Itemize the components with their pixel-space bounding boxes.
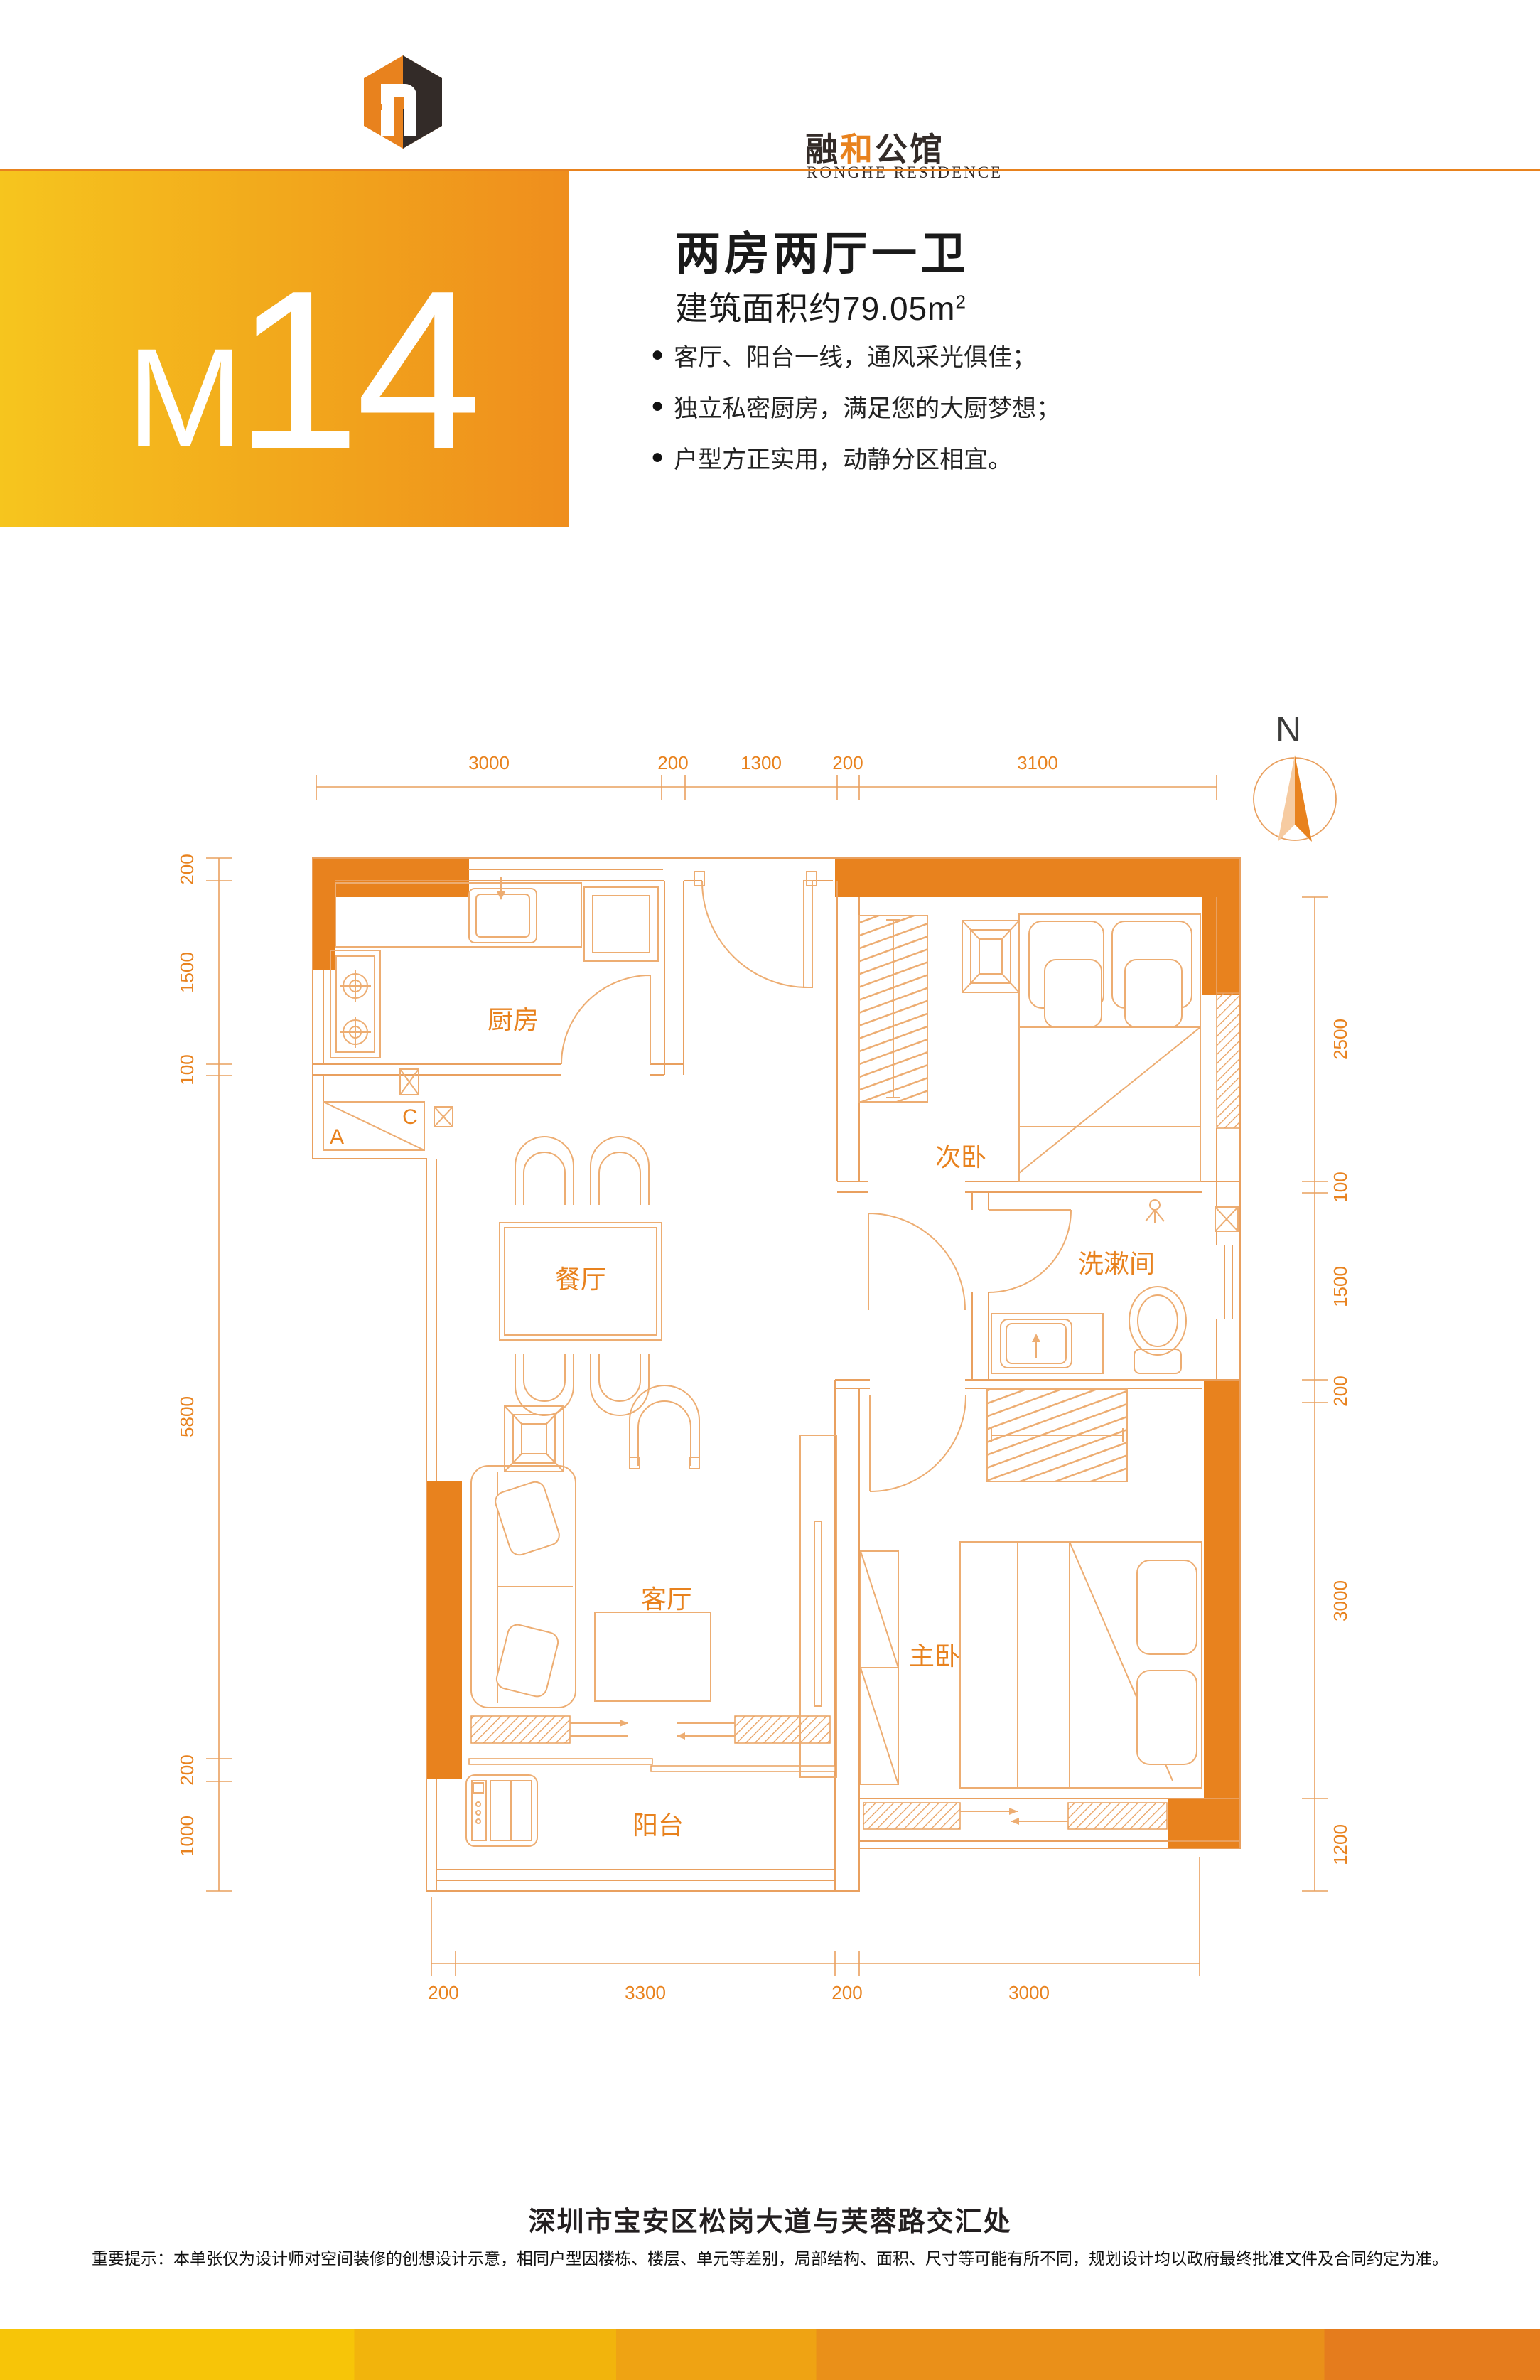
entry-door-arc <box>702 881 808 987</box>
dim-right-3: 200 <box>1330 1376 1351 1406</box>
sliding-panel-left <box>471 1716 570 1743</box>
faucet-icon <box>497 891 505 900</box>
dim-bottom-0: 200 <box>428 1982 458 2003</box>
unit-type-title: 两房两厅一卫 <box>675 218 969 283</box>
armchair <box>630 1385 699 1466</box>
dim-bottom-1: 3300 <box>625 1982 666 2003</box>
logo-name-part1: 融 <box>805 131 840 168</box>
label-living: 客厅 <box>641 1585 692 1614</box>
second-bedroom-furniture <box>859 914 1200 1181</box>
balcony-furniture <box>466 1775 537 1846</box>
master-furniture <box>861 1389 1202 1788</box>
dim-right-5: 1200 <box>1330 1824 1351 1865</box>
feature-text: 独立私密厨房，满足您的大厨梦想； <box>674 395 1060 422</box>
window-second-bedroom <box>1217 993 1240 1128</box>
washroom-door <box>989 1210 1071 1292</box>
entry-door-leaf <box>804 881 812 987</box>
sofa-pillow <box>493 1479 562 1558</box>
unit-area-text: 建筑面积约79.05m <box>675 290 955 327</box>
sliding-arrows <box>570 1720 735 1740</box>
window-master-right <box>1068 1803 1167 1829</box>
coffee-table <box>595 1612 711 1701</box>
dim-left-3: 5800 <box>176 1396 198 1437</box>
feature-item: ●独立私密厨房，满足您的大厨梦想； <box>651 384 1291 435</box>
label-cabinet-c: C <box>402 1105 418 1129</box>
north-label: N <box>1276 709 1301 749</box>
unit-code-banner: M 14 <box>0 171 569 527</box>
north-arrow-icon: N <box>1254 709 1336 842</box>
tv <box>814 1521 822 1706</box>
washroom-furniture <box>991 1200 1186 1373</box>
dim-right-0: 2500 <box>1330 1019 1351 1060</box>
logo-name-part2: 和 <box>840 131 875 168</box>
unit-letter: M <box>126 343 244 453</box>
dim-right-2: 1500 <box>1330 1266 1351 1307</box>
dim-left-5: 1000 <box>176 1816 198 1857</box>
logo-hexagon-icon <box>359 50 451 156</box>
dim-top-2: 1300 <box>741 752 782 773</box>
fridge <box>584 887 658 961</box>
dim-bottom-3: 3000 <box>1008 1982 1050 2003</box>
floor-plan: N 3000 200 1300 200 3100 200 3300 200 30… <box>0 682 1540 2047</box>
kitchen-door <box>561 975 650 1064</box>
second-bedroom-door <box>868 1213 965 1310</box>
unit-area: 建筑面积约79.05m2 <box>675 283 966 330</box>
feature-list: ●客厅、阳台一线，通风采光俱佳； ●独立私密厨房，满足您的大厨梦想； ●户型方正… <box>651 333 1291 486</box>
dim-top-0: 3000 <box>468 752 510 773</box>
dim-left-0: 200 <box>176 854 198 884</box>
bottom-gradient-strip <box>0 2329 1540 2380</box>
dim-left-4: 200 <box>176 1754 198 1785</box>
dim-top-3: 200 <box>832 752 863 773</box>
label-balcony: 阳台 <box>632 1811 684 1840</box>
window-master-left <box>863 1803 960 1829</box>
sofa-pillow <box>495 1623 560 1699</box>
label-master-bedroom: 主卧 <box>909 1641 960 1671</box>
project-address: 深圳市宝安区松岗大道与芙蓉路交汇处 <box>0 2199 1540 2239</box>
feature-item: ●客厅、阳台一线，通风采光俱佳； <box>651 333 1291 384</box>
pillow <box>1045 960 1102 1027</box>
feature-text: 户型方正实用，动静分区相宜。 <box>674 446 1012 473</box>
pillow <box>1125 960 1182 1027</box>
dim-top-1: 200 <box>657 752 688 773</box>
feature-text: 客厅、阳台一线，通风采光俱佳； <box>674 344 1036 371</box>
label-dining: 餐厅 <box>555 1265 606 1294</box>
dim-top-4: 3100 <box>1017 752 1058 773</box>
unit-number: 14 <box>235 282 478 459</box>
label-second-bedroom: 次卧 <box>935 1142 986 1172</box>
master-door <box>870 1395 966 1491</box>
dim-right-1: 100 <box>1330 1172 1351 1202</box>
disclaimer: 重要提示：本单张仅为设计师对空间装修的创想设计示意，相同户型因楼栋、楼层、单元等… <box>0 2245 1540 2269</box>
logo-subtitle: RONGHE RESIDENCE <box>807 164 1003 182</box>
label-cabinet-a: A <box>330 1125 344 1149</box>
label-kitchen: 厨房 <box>488 1005 539 1034</box>
master-window-arrows <box>960 1808 1068 1825</box>
kitchen-sink <box>469 889 537 943</box>
dim-bottom-2: 200 <box>831 1982 862 2003</box>
logo: 融和公馆 RONGHE RESIDENCE <box>359 50 657 156</box>
feature-item: ●户型方正实用，动静分区相宜。 <box>651 435 1291 486</box>
balcony-slider-1 <box>469 1759 652 1764</box>
bullet-icon: ● <box>651 381 664 431</box>
bullet-icon: ● <box>651 432 664 482</box>
bullet-icon: ● <box>651 330 664 380</box>
pillow <box>1137 1671 1197 1764</box>
label-washroom: 洗漱间 <box>1078 1249 1155 1278</box>
sliding-panel-right <box>735 1716 830 1743</box>
dim-left-2: 100 <box>176 1054 198 1085</box>
dim-right-4: 3000 <box>1330 1580 1351 1621</box>
pillow <box>1137 1560 1197 1654</box>
shower-icon <box>1150 1200 1160 1210</box>
unit-area-sup: 2 <box>955 291 966 313</box>
dim-left-1: 1500 <box>176 952 198 993</box>
logo-name-part3: 公馆 <box>875 131 944 168</box>
balcony-slider-2 <box>651 1766 835 1771</box>
vanity <box>991 1314 1103 1373</box>
